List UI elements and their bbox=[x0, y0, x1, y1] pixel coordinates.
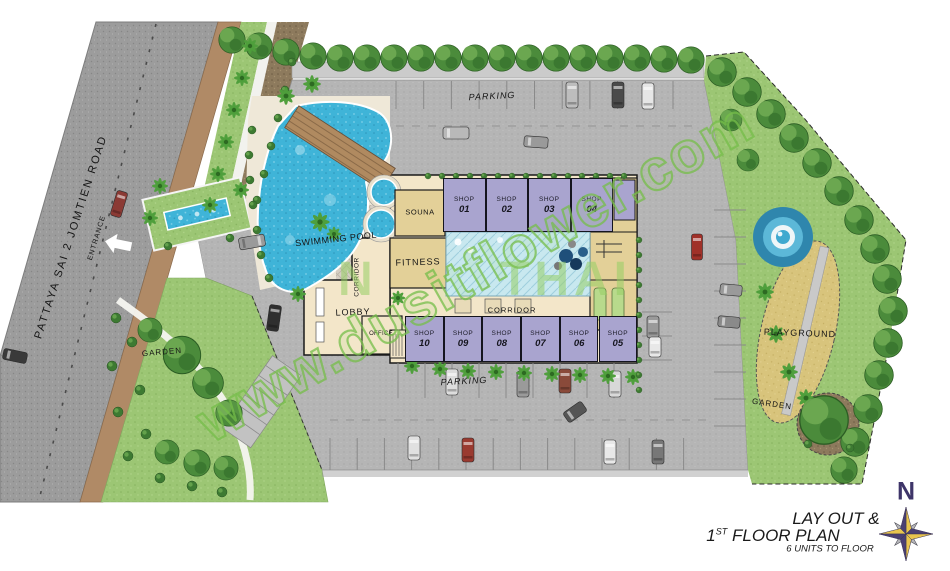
car bbox=[642, 83, 654, 109]
bush bbox=[245, 151, 253, 159]
tree bbox=[803, 149, 832, 178]
bush bbox=[636, 387, 642, 393]
bush bbox=[249, 201, 257, 209]
shop-number-label: 02 bbox=[501, 204, 512, 215]
shop-name-label: SHOP bbox=[569, 330, 589, 337]
tree bbox=[138, 318, 162, 342]
tree bbox=[435, 45, 461, 71]
palm-tree bbox=[488, 364, 504, 380]
car bbox=[408, 436, 420, 460]
palm-tree bbox=[516, 365, 532, 381]
palm-tree bbox=[226, 102, 242, 118]
palm-tree bbox=[210, 166, 226, 182]
shop-number-label: 05 bbox=[613, 338, 624, 349]
title-line3: 6 UNITS TO FLOOR bbox=[786, 544, 873, 555]
tree bbox=[708, 58, 737, 87]
car bbox=[718, 316, 741, 329]
bush bbox=[164, 242, 172, 250]
bush bbox=[246, 176, 254, 184]
tree bbox=[300, 43, 326, 69]
tree bbox=[861, 235, 890, 264]
tree bbox=[214, 456, 238, 480]
shop-number-label: 08 bbox=[496, 338, 507, 349]
tree bbox=[780, 124, 809, 153]
palm-tree bbox=[202, 197, 218, 213]
shop-07: SHOP07 bbox=[521, 316, 560, 362]
tree bbox=[489, 45, 515, 71]
bush bbox=[253, 226, 261, 234]
car bbox=[647, 316, 659, 338]
bush bbox=[155, 473, 165, 483]
palm-tree bbox=[277, 87, 295, 105]
shop-08: SHOP08 bbox=[482, 316, 521, 362]
palm-tree bbox=[234, 70, 250, 86]
palm-tree bbox=[303, 75, 321, 93]
palm-tree bbox=[600, 368, 616, 384]
car bbox=[462, 438, 474, 462]
car bbox=[720, 284, 743, 297]
tree bbox=[543, 45, 569, 71]
bush bbox=[217, 487, 227, 497]
palm-tree bbox=[142, 210, 158, 226]
tree bbox=[155, 440, 179, 464]
tree bbox=[381, 45, 407, 71]
bush bbox=[636, 267, 642, 273]
bush bbox=[267, 142, 275, 150]
shop-name-label: SHOP bbox=[453, 330, 473, 337]
bush bbox=[260, 170, 268, 178]
bush bbox=[846, 444, 854, 452]
shop-number-label: 07 bbox=[535, 338, 546, 349]
palm-tree bbox=[432, 361, 448, 377]
site-plan: PATTAYA SAI 2 JOMTIEN ROAD ENTRANCE PARK… bbox=[0, 0, 950, 571]
tree bbox=[845, 206, 874, 235]
palm-tree bbox=[544, 366, 560, 382]
compass-rose-icon bbox=[879, 507, 933, 561]
palm-tree bbox=[310, 212, 329, 231]
tree bbox=[825, 177, 854, 206]
title-line2-rest: FLOOR PLAN bbox=[727, 526, 839, 545]
palm-tree bbox=[233, 182, 249, 198]
car bbox=[524, 136, 549, 149]
car bbox=[559, 369, 571, 393]
fountain bbox=[753, 207, 813, 267]
bush bbox=[248, 126, 256, 134]
bush bbox=[107, 361, 117, 371]
tree bbox=[800, 396, 848, 444]
bush bbox=[804, 440, 812, 448]
car bbox=[566, 82, 578, 108]
tree bbox=[462, 45, 488, 71]
tree bbox=[624, 45, 650, 71]
tree bbox=[874, 329, 903, 358]
bush bbox=[226, 234, 234, 242]
car bbox=[612, 82, 624, 108]
shop-name-label: SHOP bbox=[608, 330, 628, 337]
bush bbox=[187, 481, 197, 491]
tree bbox=[570, 45, 596, 71]
palm-tree bbox=[218, 134, 234, 150]
shop-number-label: 06 bbox=[574, 338, 585, 349]
tree bbox=[408, 45, 434, 71]
tree bbox=[854, 395, 883, 424]
car bbox=[604, 440, 616, 464]
bush bbox=[636, 372, 642, 378]
bush bbox=[425, 173, 431, 179]
shop-06: SHOP06 bbox=[560, 316, 599, 362]
tree bbox=[184, 450, 210, 476]
bush bbox=[265, 274, 273, 282]
tree bbox=[651, 46, 677, 72]
bush bbox=[636, 282, 642, 288]
bush bbox=[288, 58, 296, 66]
shop-01: SHOP01 bbox=[443, 178, 486, 232]
compass-north-label: N bbox=[897, 478, 915, 507]
bush bbox=[127, 337, 137, 347]
palm-tree bbox=[152, 178, 168, 194]
bush bbox=[257, 251, 265, 259]
shop-number-label: 01 bbox=[459, 204, 470, 215]
car bbox=[443, 127, 469, 139]
palm-tree bbox=[242, 38, 258, 54]
bush bbox=[141, 429, 151, 439]
bush bbox=[135, 385, 145, 395]
shop-name-label: SHOP bbox=[454, 196, 474, 203]
palm-tree bbox=[756, 283, 774, 301]
tree bbox=[327, 45, 353, 71]
palm-tree bbox=[290, 286, 306, 302]
boundary-shadow bbox=[322, 470, 748, 477]
tree bbox=[873, 265, 902, 294]
tree bbox=[219, 27, 245, 53]
car bbox=[649, 337, 661, 357]
tree bbox=[757, 100, 786, 129]
bush bbox=[111, 313, 121, 323]
shop-number-label: 09 bbox=[458, 338, 469, 349]
tree bbox=[516, 45, 542, 71]
tree bbox=[879, 297, 908, 326]
shop-name-label: SHOP bbox=[497, 196, 517, 203]
tree bbox=[678, 47, 704, 73]
car bbox=[692, 234, 703, 260]
palm-tree bbox=[780, 363, 798, 381]
sauna-label: SOUNA bbox=[405, 208, 434, 217]
bush bbox=[123, 451, 133, 461]
car bbox=[652, 440, 664, 464]
tree bbox=[831, 457, 857, 483]
bush bbox=[636, 237, 642, 243]
tree bbox=[597, 45, 623, 71]
shop-05: SHOP05 bbox=[599, 316, 638, 362]
shop-name-label: SHOP bbox=[530, 330, 550, 337]
bush bbox=[636, 297, 642, 303]
bush bbox=[274, 114, 282, 122]
palm-tree bbox=[572, 367, 588, 383]
tree bbox=[865, 361, 894, 390]
bush bbox=[636, 252, 642, 258]
bush bbox=[113, 407, 123, 417]
tree bbox=[354, 45, 380, 71]
title-line2-sup: ST bbox=[716, 526, 728, 536]
shop-name-label: SHOP bbox=[492, 330, 512, 337]
